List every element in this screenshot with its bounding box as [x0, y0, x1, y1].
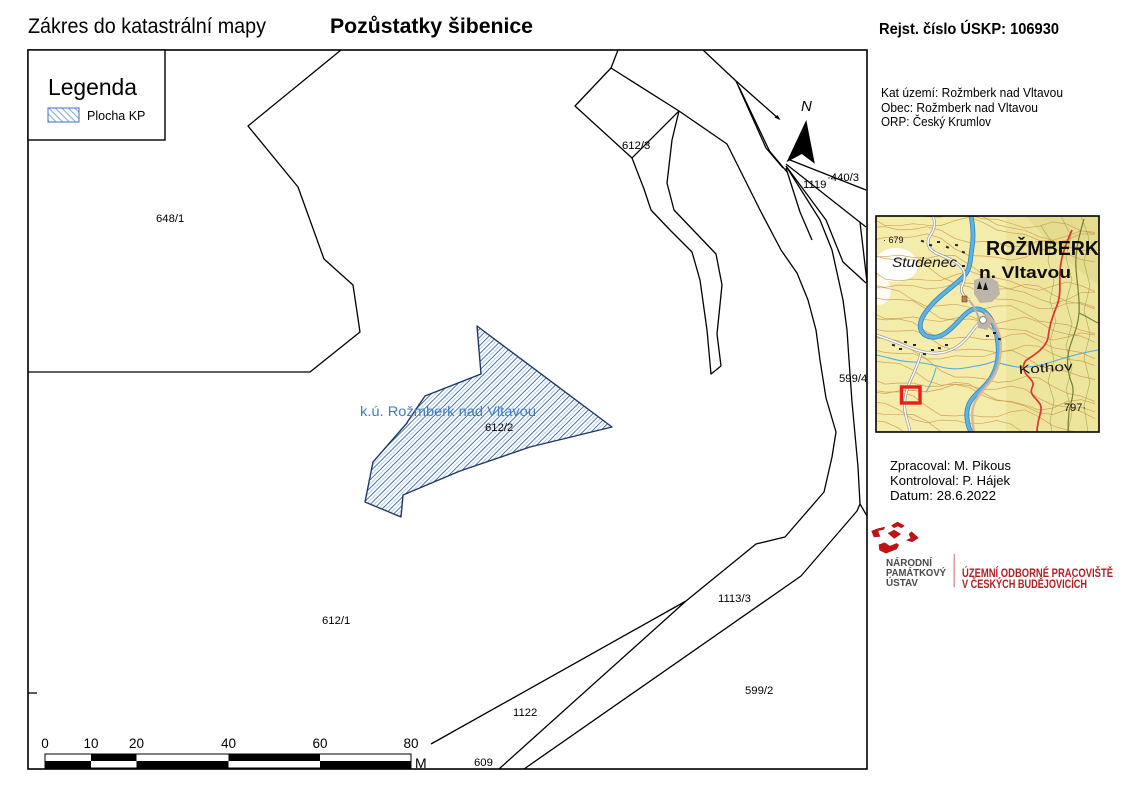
svg-text:40: 40 [221, 736, 236, 751]
svg-text:Plocha KP: Plocha KP [87, 109, 145, 123]
svg-text:Obec: Rožmberk nad Vltavou: Obec: Rožmberk nad Vltavou [881, 100, 1038, 115]
svg-text:Kat území: Rožmberk nad Vltavo: Kat území: Rožmberk nad Vltavou [881, 85, 1063, 100]
svg-text:10: 10 [83, 736, 98, 751]
svg-text:Zákres do katastrální mapy: Zákres do katastrální mapy [28, 15, 266, 38]
svg-text:60: 60 [312, 736, 327, 751]
svg-text:612/2: 612/2 [485, 422, 513, 434]
svg-text:612/3: 612/3 [622, 140, 650, 152]
svg-text:· 679: · 679 [883, 235, 904, 245]
svg-text:ÚSTAV: ÚSTAV [886, 576, 918, 589]
svg-text:648/1: 648/1 [156, 213, 184, 225]
svg-text:Datum: 28.6.2022: Datum: 28.6.2022 [890, 488, 996, 503]
svg-text:n. Vltavou: n. Vltavou [979, 263, 1071, 282]
svg-text:609: 609 [474, 757, 493, 769]
svg-text:797·: 797· [1064, 402, 1086, 414]
svg-text:Legenda: Legenda [48, 74, 138, 100]
svg-text:80: 80 [403, 736, 418, 751]
svg-text:1122: 1122 [513, 707, 537, 719]
svg-text:599/4: 599/4 [839, 373, 867, 385]
svg-text:Zpracoval: M. Pikous: Zpracoval: M. Pikous [890, 458, 1011, 473]
svg-text:ROŽMBERK: ROŽMBERK [986, 236, 1100, 260]
svg-text:·440/3: ·440/3 [827, 172, 859, 184]
svg-text:k.ú. Rožmberk nad Vltavou: k.ú. Rožmberk nad Vltavou [360, 403, 536, 419]
svg-text:Studenec: Studenec [892, 255, 957, 270]
svg-text:20: 20 [129, 736, 144, 751]
svg-text:0: 0 [41, 736, 49, 751]
svg-text:612/1: 612/1 [322, 615, 350, 627]
svg-text:N: N [801, 98, 812, 115]
svg-text:Pozůstatky šibenice: Pozůstatky šibenice [330, 15, 533, 38]
svg-text:M: M [415, 755, 427, 771]
svg-text:Kontroloval: P. Hájek: Kontroloval: P. Hájek [890, 473, 1010, 488]
svg-text:1119: 1119 [803, 179, 826, 191]
svg-text:Rejst. číslo ÚSKP: 106930: Rejst. číslo ÚSKP: 106930 [879, 20, 1059, 38]
svg-text:599/2: 599/2 [745, 685, 773, 697]
svg-text:V ČESKÝCH BUDĚJOVICÍCH: V ČESKÝCH BUDĚJOVICÍCH [962, 578, 1087, 591]
svg-text:1113/3: 1113/3 [718, 593, 751, 605]
svg-text:ORP: Český Krumlov: ORP: Český Krumlov [881, 114, 991, 129]
